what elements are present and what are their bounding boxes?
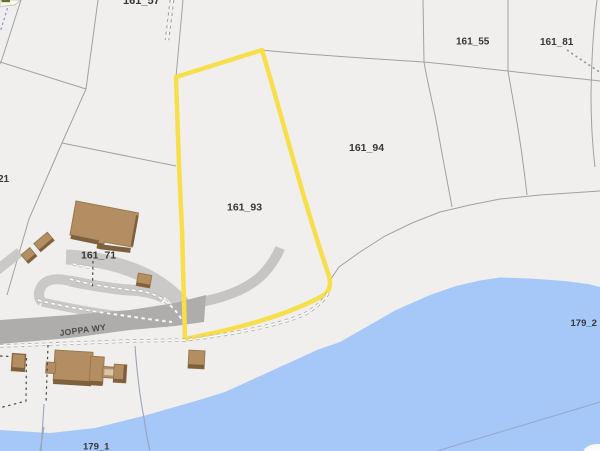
svg-text:161_71: 161_71 <box>81 250 116 262</box>
svg-text:179_1: 179_1 <box>83 442 110 451</box>
svg-text:161_93: 161_93 <box>227 202 262 214</box>
svg-text:161_57: 161_57 <box>123 0 160 7</box>
svg-text:21: 21 <box>0 174 10 185</box>
svg-text:161_55: 161_55 <box>456 37 490 48</box>
svg-text:161_94: 161_94 <box>349 142 384 154</box>
svg-text:179_2: 179_2 <box>571 318 597 329</box>
svg-text:161_81: 161_81 <box>540 37 574 48</box>
